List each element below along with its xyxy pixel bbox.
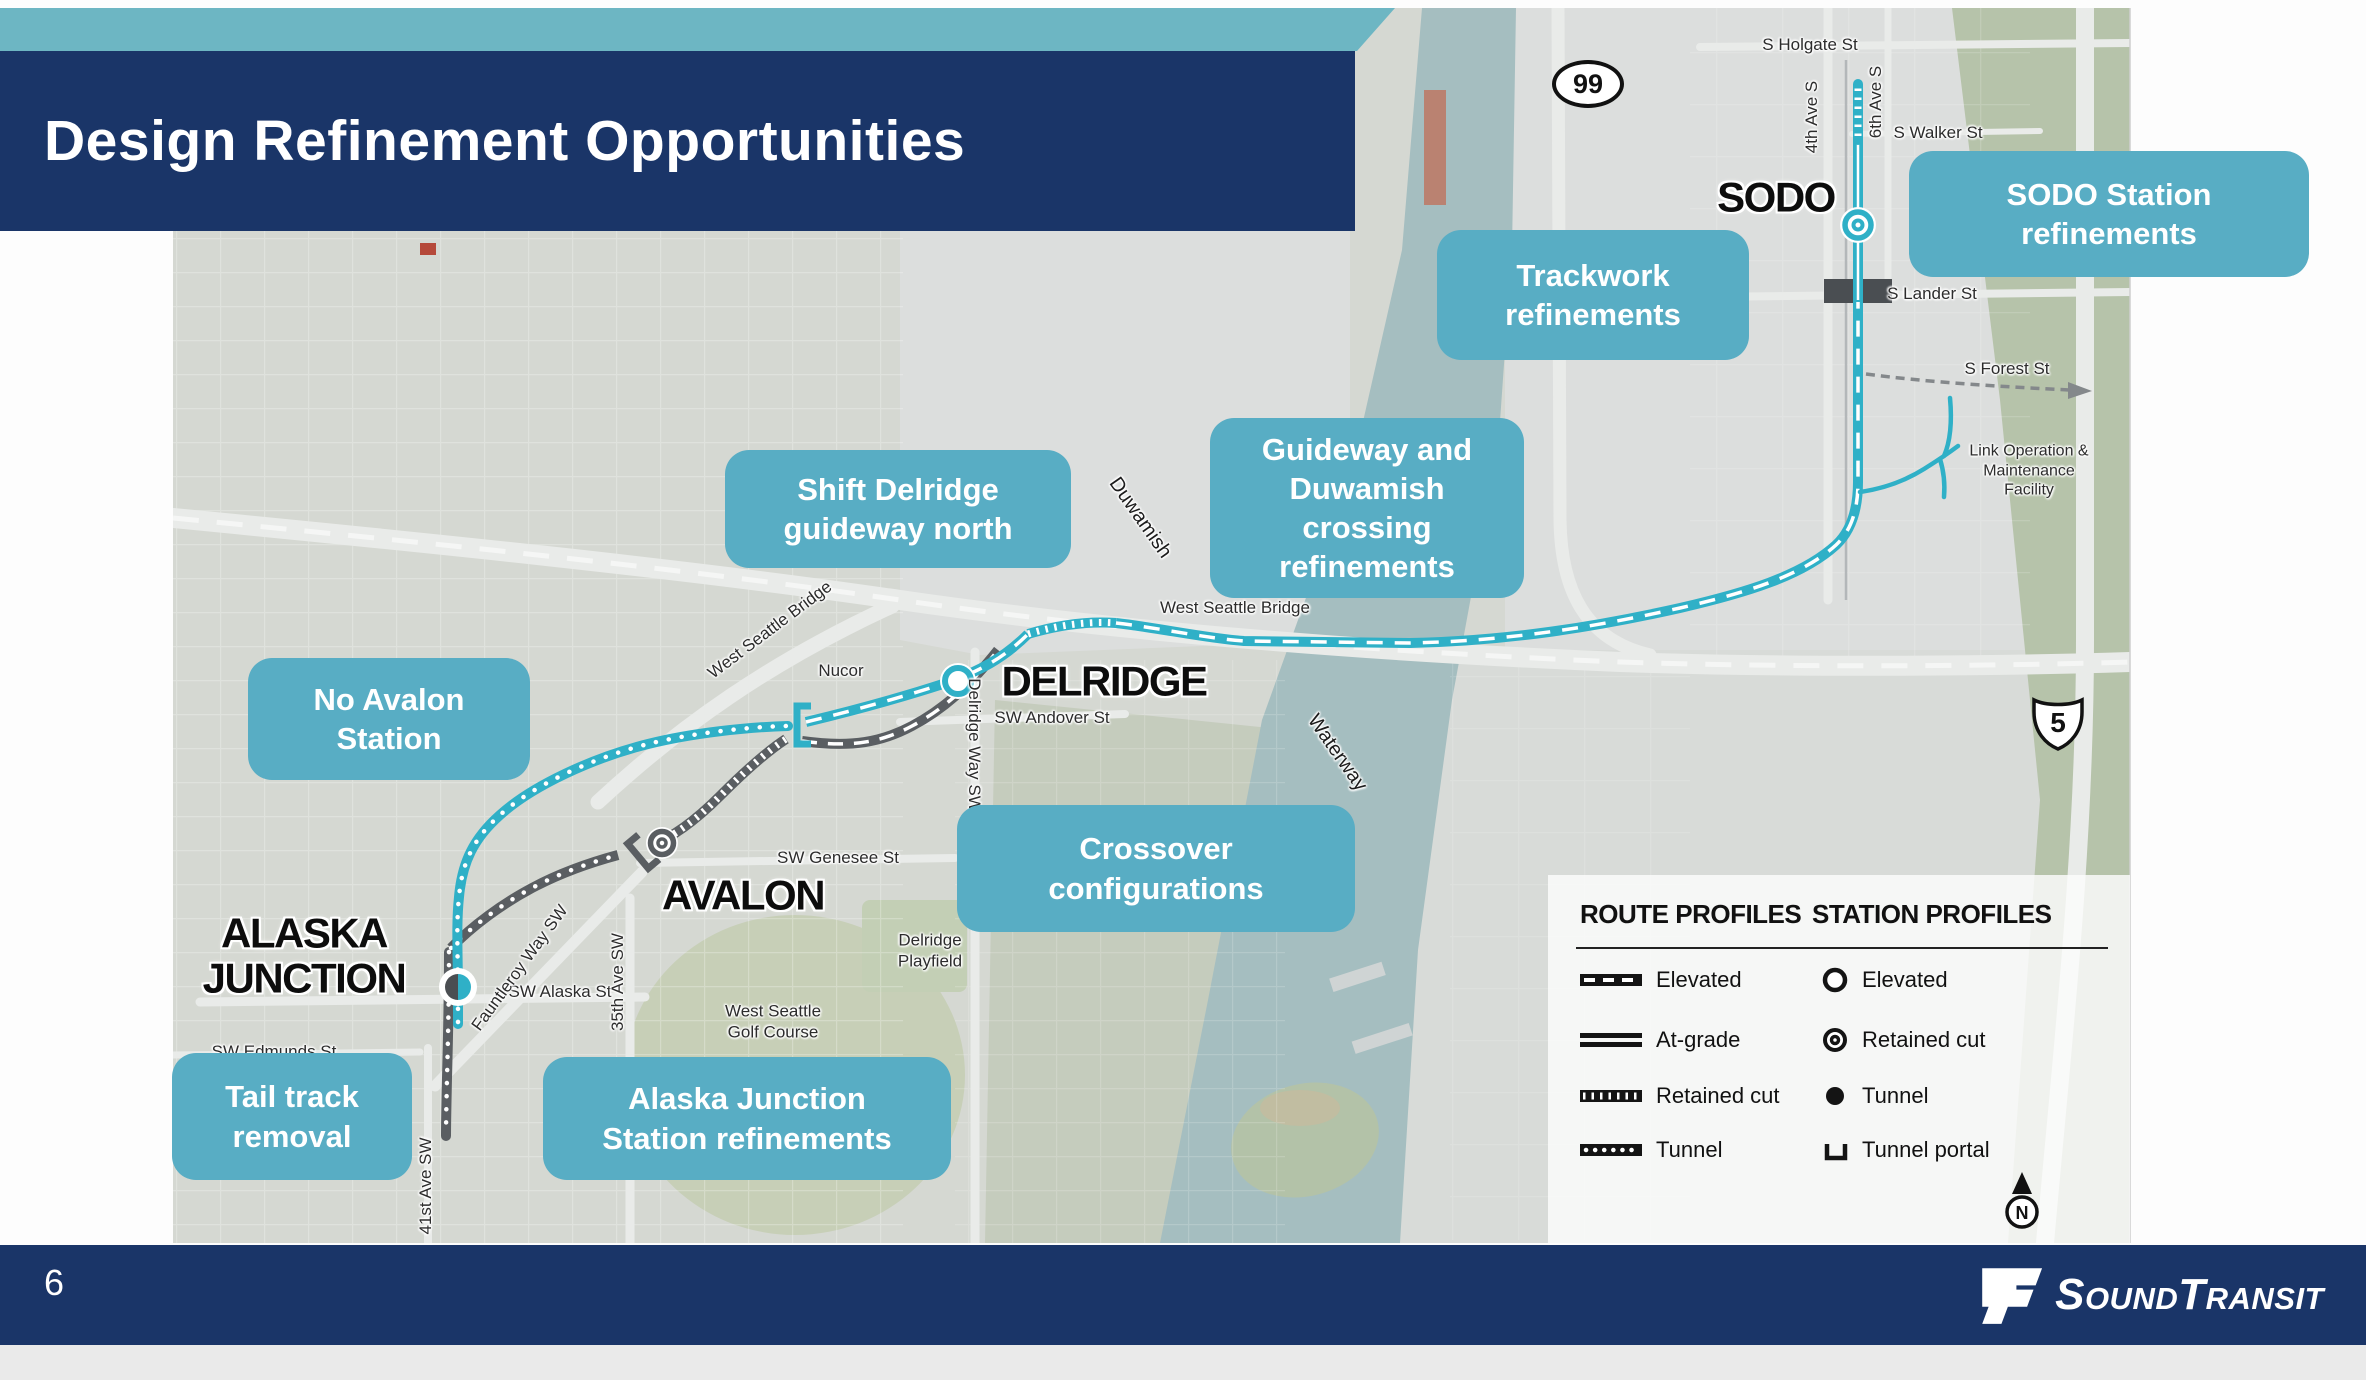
- place-label-golf-course: West Seattle Golf Course: [725, 1001, 821, 1042]
- station-label-avalon: AVALON: [662, 872, 824, 917]
- slide: Design Refinement Opportunities 6 SOUNDT…: [0, 0, 2366, 1380]
- station-label-alaska-junction: ALASKA JUNCTION: [203, 911, 406, 1002]
- legend-station-title: STATION PROFILES: [1812, 899, 2051, 930]
- station-retainedcut-icon: [1820, 1025, 1850, 1055]
- place-label-nucor: Nucor: [818, 661, 863, 681]
- street-label-35th-ave: 35th Ave SW: [608, 933, 628, 1031]
- street-label-41st-ave: 41st Ave SW: [416, 1137, 436, 1234]
- sr99-shield: 99: [1552, 60, 1624, 108]
- soundtransit-logo: SOUNDTRANSIT: [1975, 1256, 2324, 1334]
- street-label-delridge-way: Delridge Way SW: [964, 678, 984, 812]
- station-label-sodo: SODO: [1717, 174, 1835, 219]
- container-barge: [1424, 90, 1446, 205]
- i5-shield: 5: [2030, 690, 2086, 752]
- page-title: Design Refinement Opportunities: [0, 108, 965, 174]
- legend-route-title: ROUTE PROFILES: [1580, 899, 1801, 930]
- legend-row-station-retainedcut: Retained cut: [1820, 1022, 1986, 1058]
- legend-row-station-elevated: Elevated: [1820, 962, 1948, 998]
- station-tunnel-icon: [1820, 1081, 1850, 1111]
- route-atgrade-icon: [1580, 1031, 1642, 1049]
- north-arrow-icon: N: [1996, 1170, 2048, 1234]
- legend-divider: [1576, 947, 2108, 949]
- station-elevated-icon: [1820, 965, 1850, 995]
- callout-guideway-duwamish: Guideway and Duwamish crossing refinemen…: [1210, 418, 1524, 598]
- station-tunnelportal-icon: [1820, 1135, 1850, 1165]
- street-label-walker: S Walker St: [1893, 123, 1982, 143]
- legend-row-route-elevated: Elevated: [1580, 962, 1742, 998]
- street-label-lander: S Lander St: [1887, 284, 1977, 304]
- callout-no-avalon: No Avalon Station: [248, 658, 530, 780]
- legend-row-route-tunnel: Tunnel: [1580, 1132, 1722, 1168]
- street-label-ws-bridge-east: West Seattle Bridge: [1160, 598, 1310, 618]
- callout-crossover: Crossover configurations: [957, 805, 1355, 932]
- place-label-om-facility: Link Operation & Maintenance Facility: [1969, 442, 2088, 501]
- sodo-station-marker: [1845, 212, 1871, 238]
- callout-sodo-station: SODO Station refinements: [1909, 151, 2309, 277]
- street-label-andover: SW Andover St: [994, 708, 1109, 728]
- legend-row-route-retainedcut: Retained cut: [1580, 1078, 1780, 1114]
- legend-panel: ROUTE PROFILES STATION PROFILES Elevated…: [1548, 875, 2130, 1245]
- soundtransit-logo-glyph: [1975, 1264, 2045, 1326]
- legend-row-station-tunnel: Tunnel: [1820, 1078, 1928, 1114]
- place-label-delridge-playfield: Delridge Playfield: [898, 930, 962, 971]
- callout-alaska-junction: Alaska Junction Station refinements: [543, 1057, 951, 1180]
- bottom-strip: [0, 1345, 2366, 1380]
- station-label-delridge: DELRIDGE: [1001, 658, 1206, 703]
- header-bar: Design Refinement Opportunities: [0, 51, 1355, 231]
- callout-trackwork: Trackwork refinements: [1437, 230, 1749, 360]
- avalon-station-marker: [651, 832, 674, 855]
- svg-text:5: 5: [2050, 707, 2066, 738]
- route-retainedcut-icon: [1580, 1087, 1642, 1105]
- callout-tail-track: Tail track removal: [172, 1053, 412, 1180]
- soundtransit-wordmark: SOUNDTRANSIT: [2055, 1270, 2324, 1320]
- header-accent-strip: [0, 8, 1400, 51]
- street-label-4th-ave: 4th Ave S: [1802, 81, 1822, 153]
- street-label-forest: S Forest St: [1964, 359, 2049, 379]
- legend-row-route-atgrade: At-grade: [1580, 1022, 1740, 1058]
- street-label-6th-ave: 6th Ave S: [1866, 66, 1886, 138]
- street-label-genesee: SW Genesee St: [777, 848, 899, 868]
- street-label-alaska-st: SW Alaska St: [509, 982, 612, 1002]
- street-label-holgate: S Holgate St: [1762, 35, 1857, 55]
- callout-shift-delridge: Shift Delridge guideway north: [725, 450, 1071, 568]
- route-elevated-icon: [1580, 971, 1642, 989]
- svg-text:N: N: [2016, 1203, 2029, 1223]
- legend-row-station-tunnelportal: Tunnel portal: [1820, 1132, 1990, 1168]
- route-tunnel-icon: [1580, 1141, 1642, 1159]
- page-number: 6: [44, 1262, 64, 1304]
